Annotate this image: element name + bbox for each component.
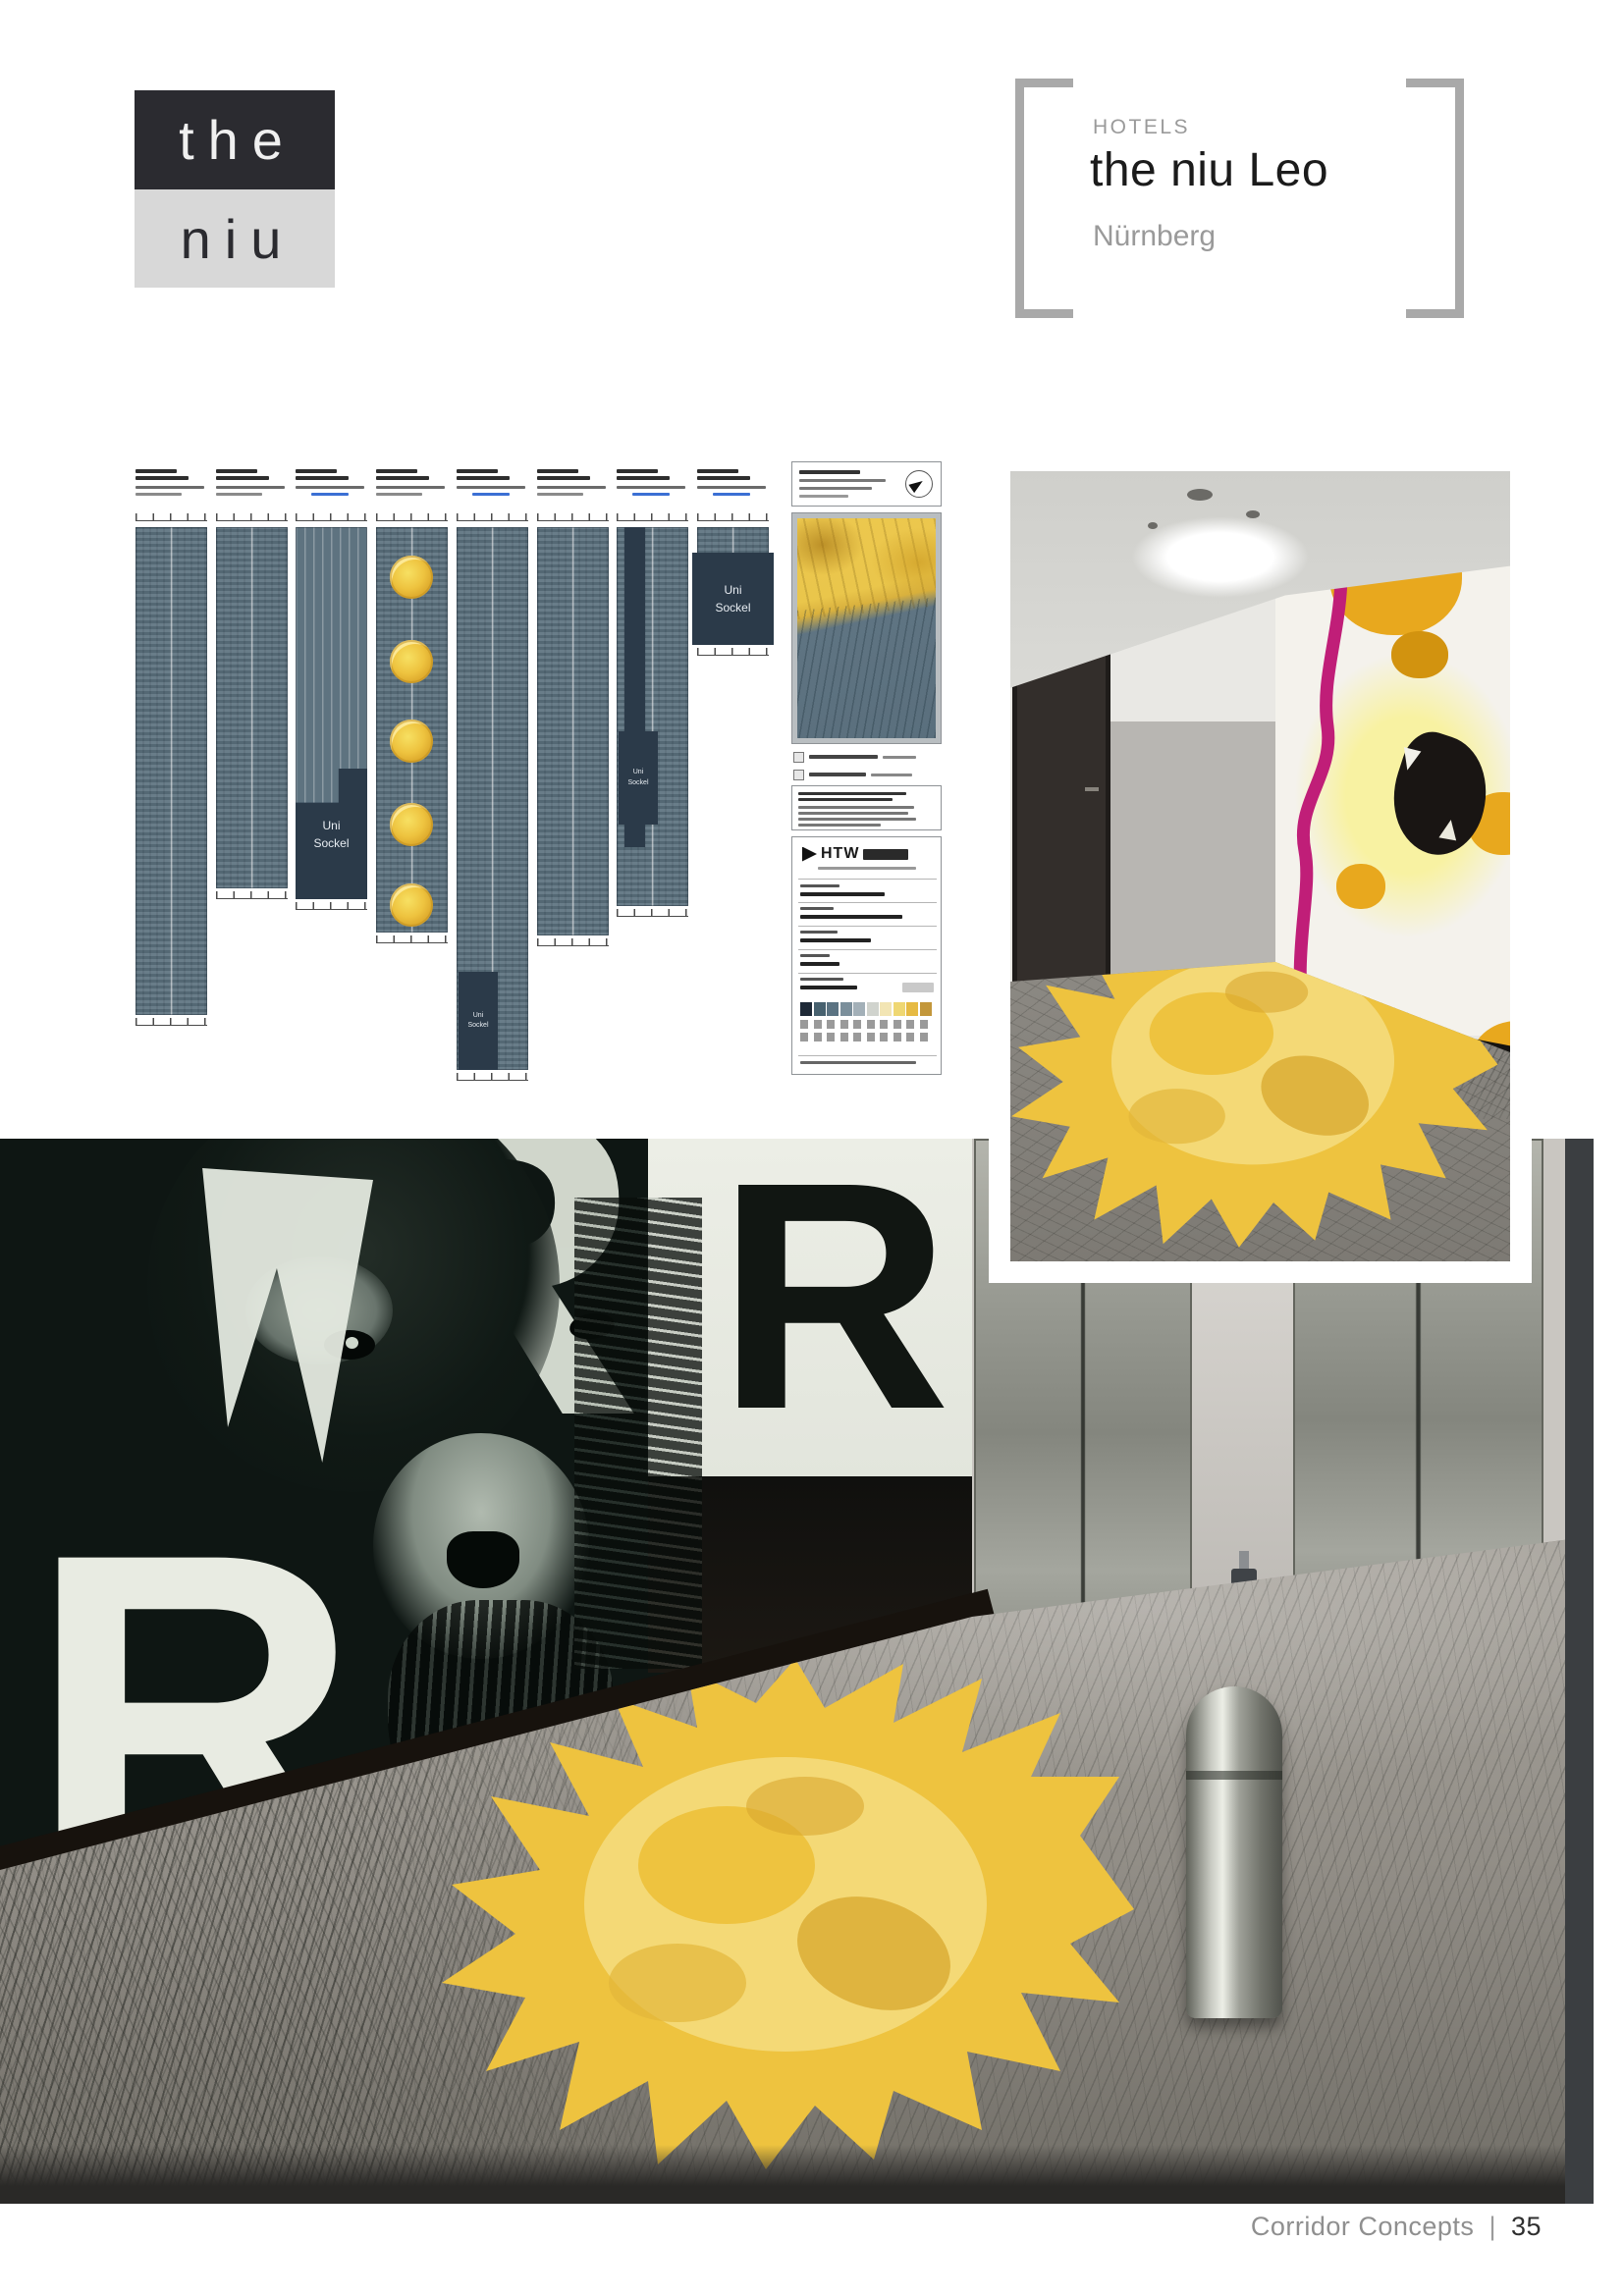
- footer-section-label: Corridor Concepts: [1251, 2212, 1475, 2241]
- mural-magenta-ribbon: [1275, 525, 1510, 1036]
- corridor-dark-door: [1012, 640, 1110, 982]
- plan-column-header: [697, 469, 769, 520]
- dimension-line: [537, 938, 609, 946]
- dimension-line: [376, 935, 448, 943]
- page-number: 35: [1511, 2212, 1542, 2241]
- dimension-line: [135, 1018, 207, 1026]
- page-title: the niu Leo: [1090, 143, 1328, 197]
- palette-swatch: [853, 1002, 865, 1016]
- uni-sockel-label: Uni Sockel: [467, 1011, 488, 1032]
- uni-sockel-box: Uni Sockel: [692, 553, 774, 645]
- uni-sockel-box: Uni Sockel: [296, 769, 367, 899]
- dimension-line: [457, 1073, 528, 1081]
- ceiling-fixture: [1246, 510, 1260, 518]
- lion-nose: [447, 1531, 519, 1588]
- legend-row: [793, 752, 916, 762]
- footer-divider: |: [1474, 2212, 1511, 2241]
- uni-sockel-label: Uni Sockel: [627, 768, 648, 788]
- plan-titleblock: HTW: [791, 836, 942, 1075]
- plan-title-panel: HTW: [791, 461, 942, 1075]
- palette-swatch: [867, 1002, 879, 1016]
- corridor-lion-mural-wall: [1275, 525, 1510, 1036]
- palette-codes-row: [800, 1033, 928, 1041]
- lion-eye-highlight: [346, 1337, 358, 1349]
- carpet-plan-column: [376, 527, 448, 933]
- palette-codes-row: [800, 1020, 928, 1029]
- carpet-artwork-drawing: [791, 512, 942, 744]
- plan-column-header: [376, 469, 448, 520]
- palette-swatch: [880, 1002, 892, 1016]
- dimension-line: [697, 648, 769, 656]
- ceiling-fixture: [1187, 489, 1213, 501]
- lion-motif-circle: [390, 556, 433, 599]
- lion-motif-circle: [390, 640, 433, 683]
- photo-corridor-lion-carpet: [989, 450, 1532, 1283]
- dimension-line: [216, 891, 288, 899]
- legend-row: [793, 770, 912, 779]
- plan-column-header: [617, 469, 688, 520]
- bracket-left-decoration: [1015, 79, 1073, 318]
- plan-column-header: [457, 469, 528, 520]
- plan-notes-box: [791, 785, 942, 830]
- lion-motif-circle: [390, 720, 433, 763]
- photo-bottom-shadow: [0, 2145, 1594, 2204]
- uni-sockel-box: Uni Sockel: [619, 731, 658, 825]
- lion-motif-circle: [390, 803, 433, 846]
- plan-column-header: [537, 469, 609, 520]
- lion-mane-strokes: [574, 1198, 702, 1669]
- palette-swatch: [920, 1002, 932, 1016]
- north-compass-icon: [905, 470, 933, 498]
- uni-sockel-label: Uni Sockel: [715, 581, 750, 616]
- brand-logo-the: the: [135, 90, 335, 189]
- palette-swatch: [814, 1002, 826, 1016]
- carpet-plan-column: Uni Sockel: [617, 527, 688, 906]
- page-footer: Corridor Concepts|35: [884, 2212, 1542, 2242]
- plan-header-box: [791, 461, 942, 507]
- section-eyebrow: HOTELS: [1093, 116, 1190, 139]
- palette-swatch: [800, 1002, 812, 1016]
- carpet-plan-column: Uni Sockel: [457, 527, 528, 1070]
- corridor-wall-band: [1110, 721, 1275, 982]
- htw-logo: HTW: [802, 845, 908, 863]
- carpet-plan-column: Uni Sockel: [697, 527, 769, 645]
- steel-trash-can: [1186, 1686, 1282, 2018]
- brand-logo: the niu: [135, 90, 335, 288]
- dimension-line: [617, 909, 688, 917]
- carpet-plan-column: Uni Sockel: [296, 527, 367, 899]
- carpet-color-palette: [800, 1002, 932, 1016]
- plan-column-header: [135, 469, 207, 520]
- uni-sockel-box: Uni Sockel: [459, 972, 498, 1070]
- plan-column-header: [216, 469, 288, 520]
- ceiling-fixture: [1148, 522, 1158, 529]
- carpet-plan-column: [216, 527, 288, 888]
- photo-elevator-lobby-roar-mural: R R R: [0, 1139, 1594, 2204]
- photo-right-dark-wall: [1565, 1139, 1594, 2204]
- bracket-right-decoration: [1406, 79, 1464, 318]
- palette-swatch: [827, 1002, 839, 1016]
- dimension-line: [296, 902, 367, 910]
- page-subtitle: Nürnberg: [1093, 220, 1216, 253]
- lion-head-carpet-motif: [432, 1659, 1159, 2169]
- htw-logo-mark-icon: [802, 847, 817, 862]
- palette-swatch: [906, 1002, 918, 1016]
- palette-swatch: [840, 1002, 852, 1016]
- brand-logo-niu: niu: [135, 189, 335, 288]
- mural-letter: R: [717, 1166, 950, 1425]
- palette-swatch: [893, 1002, 905, 1016]
- uni-sockel-label: Uni Sockel: [313, 817, 349, 852]
- brochure-page: the niu HOTELS the niu Leo Nürnberg Uni …: [0, 0, 1624, 2296]
- carpet-plan-column: [135, 527, 207, 1015]
- carpet-plan-column: [537, 527, 609, 935]
- lion-motif-circle: [390, 883, 433, 927]
- plan-column-header: [296, 469, 367, 520]
